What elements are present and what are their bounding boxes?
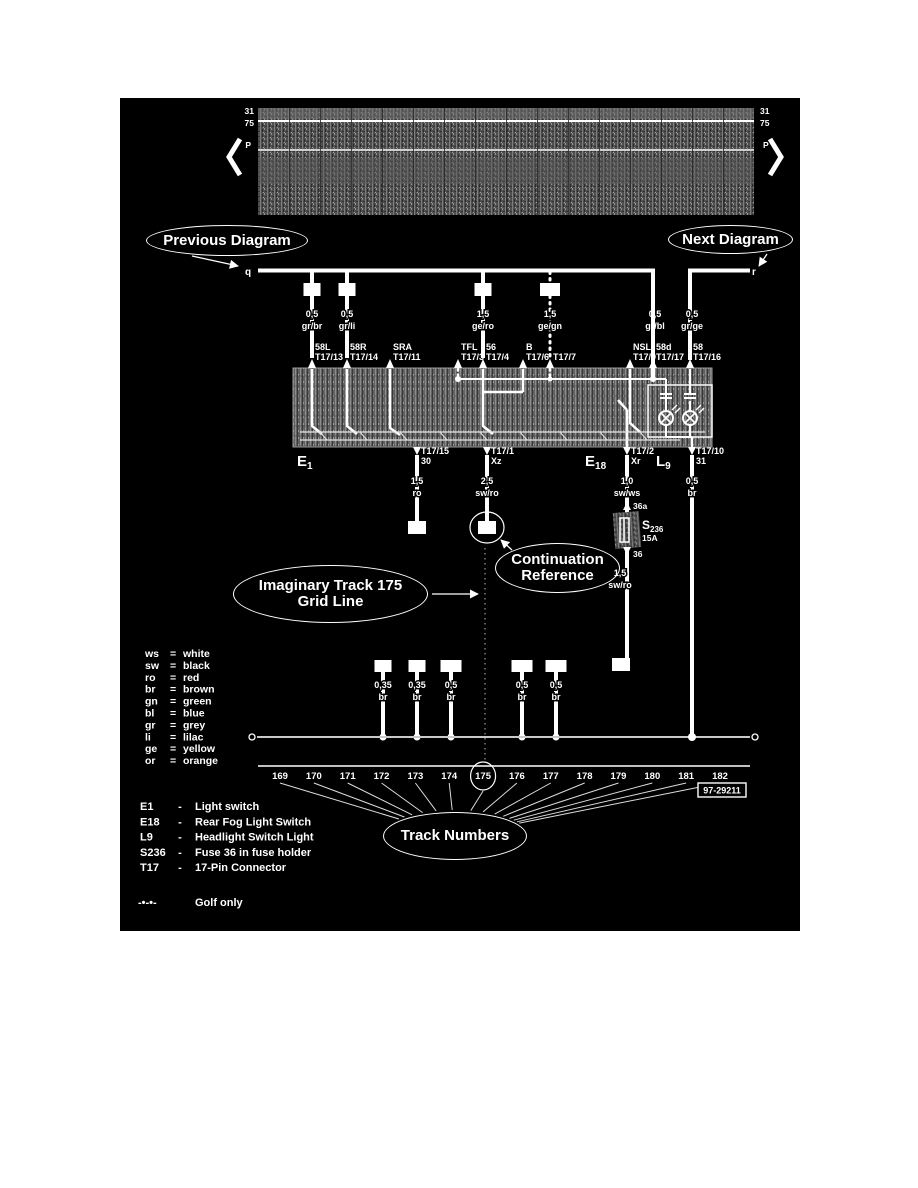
dash: - — [178, 801, 182, 813]
wire-gauge: 0,5 — [550, 680, 563, 690]
color-name: white — [182, 648, 210, 660]
terminal-pin: T17/14 — [350, 352, 378, 362]
color-code: bl — [145, 708, 154, 720]
terminal-name: 58L — [315, 342, 331, 352]
color-legend: ws=whitesw=blackro=redbr=browngn=greenbl… — [144, 648, 218, 767]
wire-color: br — [688, 488, 697, 498]
equals-sign: = — [170, 743, 176, 755]
continuation-ref-number: 109 — [444, 662, 458, 672]
previous-band-arrow-icon — [229, 139, 240, 175]
track-number-178: 178 — [577, 771, 593, 782]
dash: - — [178, 816, 182, 828]
terminal-top-T17-3: TFLT17/3 — [454, 342, 484, 368]
color-name: blue — [183, 708, 205, 720]
component-label-e1: E1 — [297, 453, 313, 472]
component-name: Headlight Switch Light — [195, 832, 314, 844]
continuation-ref-number: 8 — [485, 523, 490, 533]
bus-left-end-label: q — [245, 267, 251, 278]
ground-feed-circuit: 0,5br — [686, 455, 699, 735]
golf-only-text: Golf only — [195, 897, 244, 909]
wire-color: ro — [413, 488, 423, 498]
terminal-pin: T17/11 — [393, 352, 421, 362]
pin-arrow-icon — [623, 502, 631, 510]
wire-color: gr/li — [339, 321, 356, 331]
component-name: Rear Fog Light Switch — [195, 816, 311, 828]
junction-dot — [455, 376, 461, 382]
track-number-182: 182 — [712, 771, 728, 782]
terminal-number: 30 — [421, 456, 431, 466]
band-grid — [351, 108, 352, 215]
band-grid — [723, 108, 724, 215]
wire-gauge: 1,5 — [544, 309, 557, 319]
color-name: grey — [183, 719, 205, 731]
wire-color: br — [552, 692, 561, 702]
band-grid — [661, 108, 662, 215]
color-code: ws — [144, 648, 159, 660]
ground-bus-left-end — [249, 734, 255, 740]
color-name: red — [183, 672, 199, 684]
band-left-31: 31 — [245, 106, 255, 116]
component-code: E18 — [140, 816, 160, 828]
manual-page: 3175P3175Pqr570,5gr/br660,5gr/li861,5ge/… — [0, 0, 918, 1188]
color-code: gn — [145, 696, 158, 708]
terminal-pin: T17/13 — [315, 352, 343, 362]
fuse-pin-top: 36a — [633, 501, 647, 511]
terminal-number: Xz — [491, 456, 502, 466]
callout-continuation-line1: Continuation — [511, 552, 603, 568]
callout-track-numbers-label: Track Numbers — [401, 828, 509, 844]
color-code: ge — [145, 743, 157, 755]
previous-diagram-arrow — [192, 256, 238, 266]
wire-gauge: 1,5 — [477, 309, 490, 319]
color-code: ro — [145, 672, 156, 684]
overview-band: 3175P3175P — [229, 106, 781, 215]
terminal-pin: T17/17 — [656, 352, 684, 362]
terminal-name: 58R — [350, 342, 367, 352]
terminal-pin: T17/1 — [491, 446, 514, 456]
color-name: green — [183, 696, 212, 708]
component-name: Light switch — [195, 801, 259, 813]
fuse-label-s236: S236 — [642, 518, 664, 534]
band-grid — [630, 108, 631, 215]
wire-gauge: 0,35 — [408, 680, 426, 690]
component-legend: E1-Light switchE18-Rear Fog Light Switch… — [138, 801, 314, 909]
band-grid — [537, 108, 538, 215]
wire-color: sw/ro — [608, 580, 632, 590]
callout-continuation-line2: Reference — [521, 568, 594, 584]
terminal-name: 58 — [693, 342, 703, 352]
color-code: gr — [145, 719, 156, 731]
equals-sign: = — [170, 684, 176, 696]
continuation-ref-number: 66 — [342, 285, 352, 295]
terminal-pin: T17/2 — [631, 446, 654, 456]
callout-previous-diagram-label: Previous Diagram — [163, 233, 291, 249]
ground-circuit-72: 720,35br — [408, 660, 426, 741]
continuation-ref-number: 106 — [543, 285, 557, 295]
color-code: sw — [145, 660, 160, 672]
terminal-pin: T17/6 — [526, 352, 549, 362]
drop-circuit-10: 1,5ro10 — [408, 455, 426, 534]
wire-gauge: 0,5 — [306, 309, 319, 319]
terminal-number: Xr — [631, 456, 641, 466]
equals-sign: = — [170, 731, 176, 743]
terminal-name: B — [526, 342, 533, 352]
continuation-ref-number: 10 — [412, 523, 422, 533]
callout-next-diagram: Next Diagram — [668, 225, 793, 254]
track-number-171: 171 — [340, 771, 357, 782]
track-fan-line — [471, 791, 483, 811]
terminal-name: SRA — [393, 342, 413, 352]
track-number-179: 179 — [611, 771, 627, 782]
band-grid — [320, 108, 321, 215]
track-fan-line — [514, 783, 653, 820]
terminal-pin: T17/4 — [486, 352, 509, 362]
ground-circuit-254: 2540,5br — [546, 660, 567, 741]
wire-color: br — [447, 692, 456, 702]
track-number-181: 181 — [678, 771, 695, 782]
band-grid — [692, 108, 693, 215]
ground-circuit-71: 710,35br — [374, 660, 392, 741]
band-grid — [475, 108, 476, 215]
terminal-name: 56 — [486, 342, 496, 352]
band-left-75: 75 — [245, 118, 255, 128]
track-fan-line — [449, 783, 452, 810]
doc-number: 97-29211 — [698, 783, 746, 797]
component-code: S236 — [140, 847, 166, 859]
terminal-pin: T17/15 — [421, 446, 449, 456]
wire-color: ge/ro — [472, 321, 495, 331]
switch-component-box — [293, 368, 712, 447]
wire-gauge: 0,5 — [686, 309, 699, 319]
component-label-l9: L9 — [656, 453, 671, 472]
continuation-ref-number: 57 — [307, 285, 317, 295]
equals-sign: = — [170, 696, 176, 708]
equals-sign: = — [170, 708, 176, 720]
equals-sign: = — [170, 719, 176, 731]
terminal-pin: T17/3 — [461, 352, 484, 362]
continuation-ref-number: 254 — [549, 662, 563, 672]
bus-right-end-label: r — [752, 267, 756, 278]
golf-only-symbol: -•-•- — [138, 897, 157, 909]
wire-color: br — [413, 692, 422, 702]
callout-imaginary-line2: Grid Line — [298, 594, 364, 610]
color-code: li — [145, 731, 151, 743]
ground-circuit-109: 1090,5br — [441, 660, 462, 741]
terminal-number: 31 — [696, 456, 706, 466]
component-code: E1 — [140, 801, 153, 813]
ground-circuit-253: 2530,5br — [512, 660, 533, 741]
wire-gauge: 2,5 — [481, 476, 494, 486]
color-name: brown — [183, 684, 215, 696]
component-name: 17-Pin Connector — [195, 862, 287, 874]
terminal-name: NSL — [633, 342, 652, 352]
wire-gauge: 1,0 — [621, 476, 634, 486]
track-number-177: 177 — [543, 771, 559, 782]
terminal-top-T17-11: SRAT17/11 — [386, 342, 421, 368]
band-right-75: 75 — [760, 118, 770, 128]
equals-sign: = — [170, 648, 176, 660]
track-fan-line — [415, 783, 436, 811]
wire-gauge: 0,5 — [686, 476, 699, 486]
track-fan-line — [382, 783, 423, 813]
wire-color: br — [379, 692, 388, 702]
dash: - — [178, 847, 182, 859]
band-right-31: 31 — [760, 106, 770, 116]
fuse-amps: 15A — [642, 533, 658, 543]
terminal-top-T17-6: BT17/6 — [519, 342, 549, 368]
track-fan-line — [495, 783, 551, 814]
band-right-p: P — [763, 140, 769, 150]
wiring-diagram-canvas: 3175P3175Pqr570,5gr/br660,5gr/li861,5ge/… — [120, 98, 800, 931]
junction-dot — [688, 733, 696, 741]
wire-color: br — [518, 692, 527, 702]
wire-gauge: 1,5 — [411, 476, 424, 486]
track-fan-line — [503, 783, 584, 816]
color-name: yellow — [183, 743, 216, 755]
wire-gauge: 0,5 — [445, 680, 458, 690]
terminal-pin: T17/10 — [696, 446, 724, 456]
wiring-diagram: 3175P3175Pqr570,5gr/br660,5gr/li861,5ge/… — [120, 98, 800, 931]
wire-color: sw/ro — [475, 488, 499, 498]
component-name: Fuse 36 in fuse holder — [195, 847, 312, 859]
terminal-pin: T17/7 — [553, 352, 576, 362]
dash: - — [178, 862, 182, 874]
callout-imaginary-line1: Imaginary Track 175 — [259, 578, 402, 594]
wire-color: gr/ge — [681, 321, 703, 331]
band-grid — [289, 108, 290, 215]
color-code: or — [145, 755, 156, 767]
equals-sign: = — [170, 755, 176, 767]
track-number-173: 173 — [407, 771, 423, 782]
wire-color: sw/ws — [614, 488, 641, 498]
callout-imaginary-track: Imaginary Track 175 Grid Line — [233, 565, 428, 623]
color-name: black — [183, 660, 210, 672]
doc-number-text: 97-29211 — [703, 786, 741, 796]
band-grid — [568, 108, 569, 215]
callout-next-diagram-label: Next Diagram — [682, 232, 779, 248]
color-name: lilac — [183, 731, 204, 743]
next-band-arrow-icon — [770, 139, 781, 175]
track-scale: 1691701711721731741751761771781791801811… — [258, 762, 750, 790]
track-number-174: 174 — [441, 771, 458, 782]
terminal-arrow-icon — [688, 447, 696, 455]
equals-sign: = — [170, 672, 176, 684]
band-left-p: P — [245, 140, 251, 150]
component-label-e18: E18 — [585, 453, 607, 472]
next-diagram-arrow — [759, 254, 767, 266]
callout-continuation-reference: Continuation Reference — [495, 543, 620, 593]
drop-circuit-8: 2,5sw/ro8 — [470, 455, 504, 543]
track-fan-line — [280, 783, 399, 819]
track-fan-line — [509, 783, 618, 818]
component-code: T17 — [140, 862, 159, 874]
component-code: L9 — [140, 832, 153, 844]
dash: - — [178, 832, 182, 844]
terminal-pin: T17/16 — [693, 352, 721, 362]
callout-previous-diagram: Previous Diagram — [146, 225, 308, 256]
wire-gauge: 0,5 — [516, 680, 529, 690]
wire-color: ge/gn — [538, 321, 562, 331]
band-grid — [444, 108, 445, 215]
terminal-arrow-icon — [413, 447, 421, 455]
band-grid — [599, 108, 600, 215]
wire-gauge: 0,5 — [341, 309, 354, 319]
color-name: orange — [183, 755, 218, 767]
band-grid — [506, 108, 507, 215]
terminal-name: TFL — [461, 342, 478, 352]
wire-gauge: 0,35 — [374, 680, 392, 690]
continuation-arrow — [501, 540, 512, 550]
ground-bus-right-end — [752, 734, 758, 740]
track-fan-line — [519, 783, 720, 823]
track-number-170: 170 — [306, 771, 322, 782]
band-grid — [382, 108, 383, 215]
track-number-180: 180 — [644, 771, 660, 782]
continuation-ref-number: 253 — [515, 662, 529, 672]
track-number-175: 175 — [475, 771, 492, 782]
track-fan-line — [483, 783, 517, 812]
track-number-172: 172 — [374, 771, 390, 782]
track-number-169: 169 — [272, 771, 288, 782]
terminal-arrow-icon — [623, 447, 631, 455]
wire-color: gr/br — [302, 321, 323, 331]
continuation-ref-number: 71 — [378, 662, 388, 672]
terminal-name: 58d — [656, 342, 672, 352]
band-grid — [413, 108, 414, 215]
terminal-arrow-icon — [483, 447, 491, 455]
continuation-ref-number: 72 — [412, 662, 422, 672]
callout-track-numbers: Track Numbers — [383, 812, 527, 860]
color-code: br — [145, 684, 156, 696]
continuation-ref-number: 9 — [619, 660, 624, 670]
fuse-pin-bottom: 36 — [633, 549, 643, 559]
equals-sign: = — [170, 660, 176, 672]
top-circuit-106: 1061,5ge/gn — [538, 272, 562, 358]
continuation-ref-number: 86 — [478, 285, 488, 295]
fuse-body — [613, 511, 641, 549]
track-number-176: 176 — [509, 771, 525, 782]
